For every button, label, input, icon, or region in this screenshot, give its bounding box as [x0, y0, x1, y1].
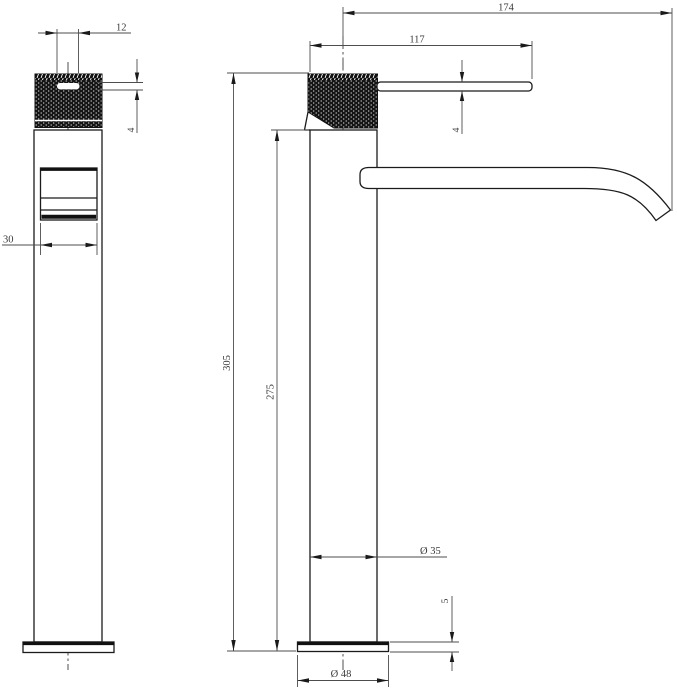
svg-text:Ø 48: Ø 48	[331, 669, 352, 680]
svg-text:305: 305	[222, 355, 233, 371]
front-body	[34, 130, 102, 642]
svg-text:275: 275	[266, 384, 277, 400]
dim-slot-width: 12	[38, 23, 131, 74]
dim-body-height: 275	[266, 130, 310, 651]
front-base	[23, 642, 114, 653]
svg-text:12: 12	[116, 23, 127, 34]
svg-text:4: 4	[452, 127, 462, 132]
side-view	[298, 7, 671, 670]
svg-text:117: 117	[409, 35, 424, 46]
svg-text:4: 4	[127, 127, 137, 132]
side-base	[298, 642, 389, 652]
faucet-technical-drawing: 12 4 30 174	[0, 0, 677, 691]
svg-text:174: 174	[498, 3, 515, 14]
dim-slot-height: 4	[97, 59, 143, 133]
spout	[360, 168, 671, 221]
svg-text:Ø 35: Ø 35	[420, 546, 441, 557]
dim-base-height: 5	[390, 596, 459, 671]
svg-text:5: 5	[441, 598, 451, 603]
side-body	[310, 130, 377, 642]
front-view	[23, 62, 114, 670]
front-handle-knob	[35, 74, 102, 128]
handle-slot	[57, 83, 80, 89]
dim-overall-height: 305	[222, 73, 309, 651]
dim-handle-thickness: 4	[452, 60, 464, 134]
svg-text:30: 30	[3, 235, 14, 246]
drawing-svg: 12 4 30 174	[0, 0, 677, 691]
side-handle-knob	[305, 74, 378, 130]
handle-lever	[377, 82, 532, 91]
